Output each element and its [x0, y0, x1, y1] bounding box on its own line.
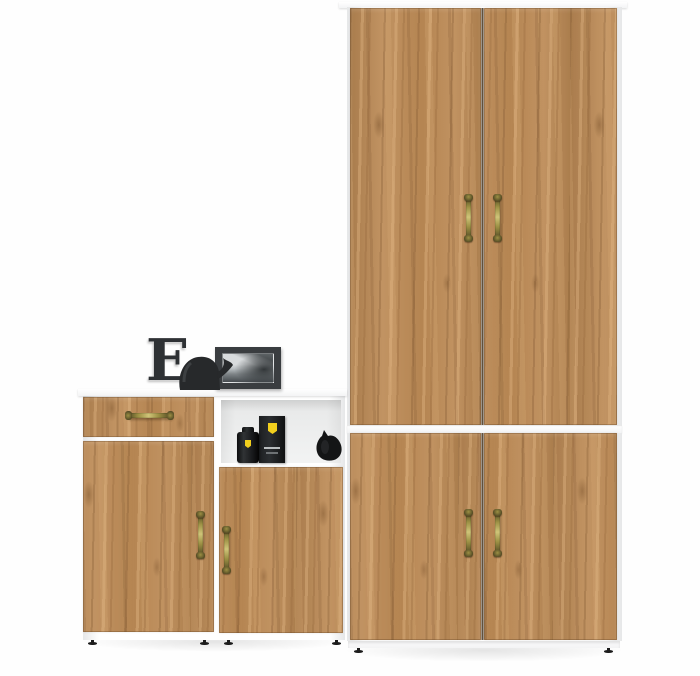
sideboard-foot-1: [88, 640, 97, 645]
product-photo-scene: E: [0, 0, 700, 676]
perfume-bottle: [237, 432, 259, 463]
sideboard-foot-4: [332, 640, 341, 645]
sideboard-drawer-handle: [127, 413, 172, 418]
sideboard-foot-3: [224, 640, 233, 645]
black-figurine: [316, 429, 343, 462]
perfume-box-shield-badge: [268, 423, 277, 434]
perfume-box-text-line: [264, 447, 280, 449]
sideboard-door-right-handle: [224, 528, 229, 572]
perfume-box: [259, 416, 285, 463]
sideboard-set: [0, 0, 700, 676]
sideboard-door-left-handle: [198, 513, 203, 557]
perfume-bottle-shield-badge: [245, 440, 251, 448]
sideboard-door-left: [83, 441, 214, 632]
sideboard-foot-2: [200, 640, 209, 645]
perfume-box-text-line-2: [266, 452, 278, 454]
sideboard-door-right: [219, 467, 343, 633]
sideboard-top-panel: [78, 389, 347, 396]
elephant-figurine: [176, 351, 234, 390]
